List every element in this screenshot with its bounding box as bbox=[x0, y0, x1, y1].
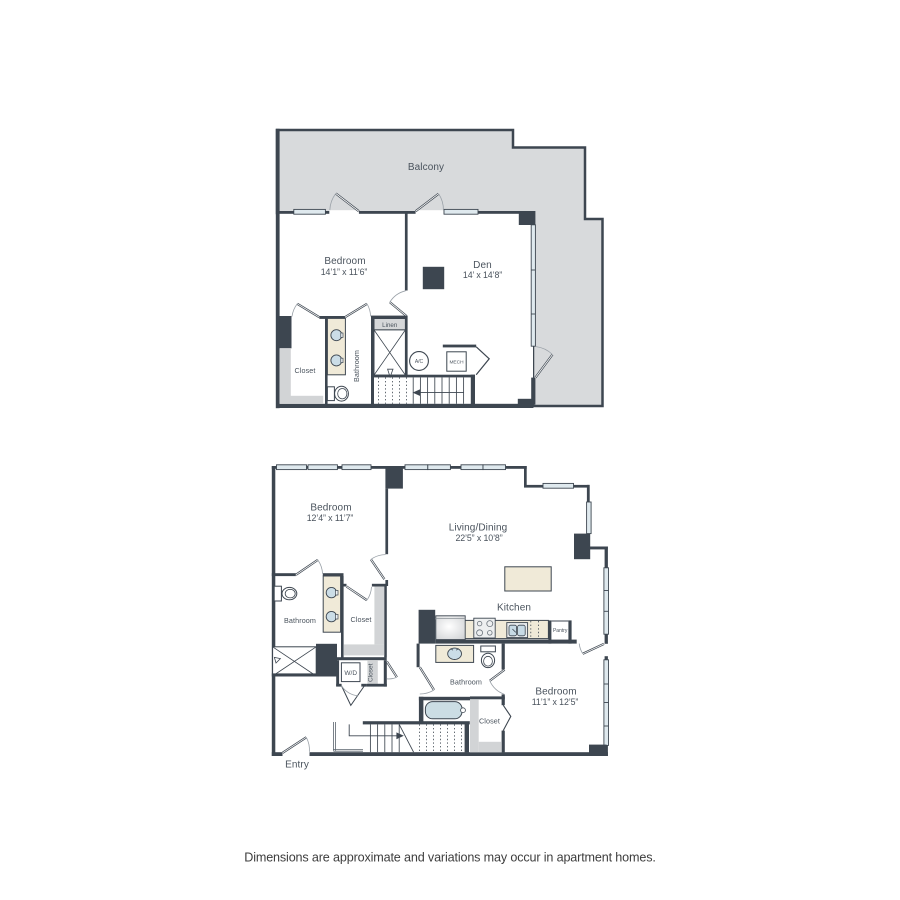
svg-text:11’1” x 12’5”: 11’1” x 12’5” bbox=[532, 697, 579, 707]
svg-text:14’ x 14’8”: 14’ x 14’8” bbox=[463, 270, 502, 280]
svg-text:Kitchen: Kitchen bbox=[497, 603, 531, 614]
svg-text:Bedroom: Bedroom bbox=[310, 503, 351, 514]
svg-text:W/D: W/D bbox=[344, 670, 357, 677]
svg-text:Bathroom: Bathroom bbox=[450, 678, 482, 687]
svg-text:Closet: Closet bbox=[295, 366, 316, 375]
svg-text:Bathroom: Bathroom bbox=[284, 616, 316, 625]
svg-text:MECH: MECH bbox=[449, 359, 464, 365]
svg-text:Bedroom: Bedroom bbox=[324, 256, 365, 267]
svg-text:Entry: Entry bbox=[285, 760, 309, 771]
svg-text:22’5” x 10’8”: 22’5” x 10’8” bbox=[455, 533, 502, 543]
svg-text:Bedroom: Bedroom bbox=[535, 687, 576, 698]
svg-text:Bathroom: Bathroom bbox=[352, 350, 361, 382]
svg-text:12’4” x 11’7”: 12’4” x 11’7” bbox=[307, 513, 354, 523]
svg-text:Linen: Linen bbox=[382, 322, 398, 329]
svg-text:14’1” x 11’6”: 14’1” x 11’6” bbox=[321, 267, 368, 277]
svg-text:Closet: Closet bbox=[368, 663, 375, 682]
svg-text:Balcony: Balcony bbox=[408, 162, 444, 173]
svg-text:Closet: Closet bbox=[479, 717, 500, 726]
svg-text:Pantry: Pantry bbox=[553, 628, 568, 634]
svg-text:A/C: A/C bbox=[415, 359, 424, 365]
svg-text:Closet: Closet bbox=[351, 615, 372, 624]
svg-text:Dimensions are approximate and: Dimensions are approximate and variation… bbox=[244, 851, 655, 865]
svg-text:Living/Dining: Living/Dining bbox=[449, 523, 508, 534]
